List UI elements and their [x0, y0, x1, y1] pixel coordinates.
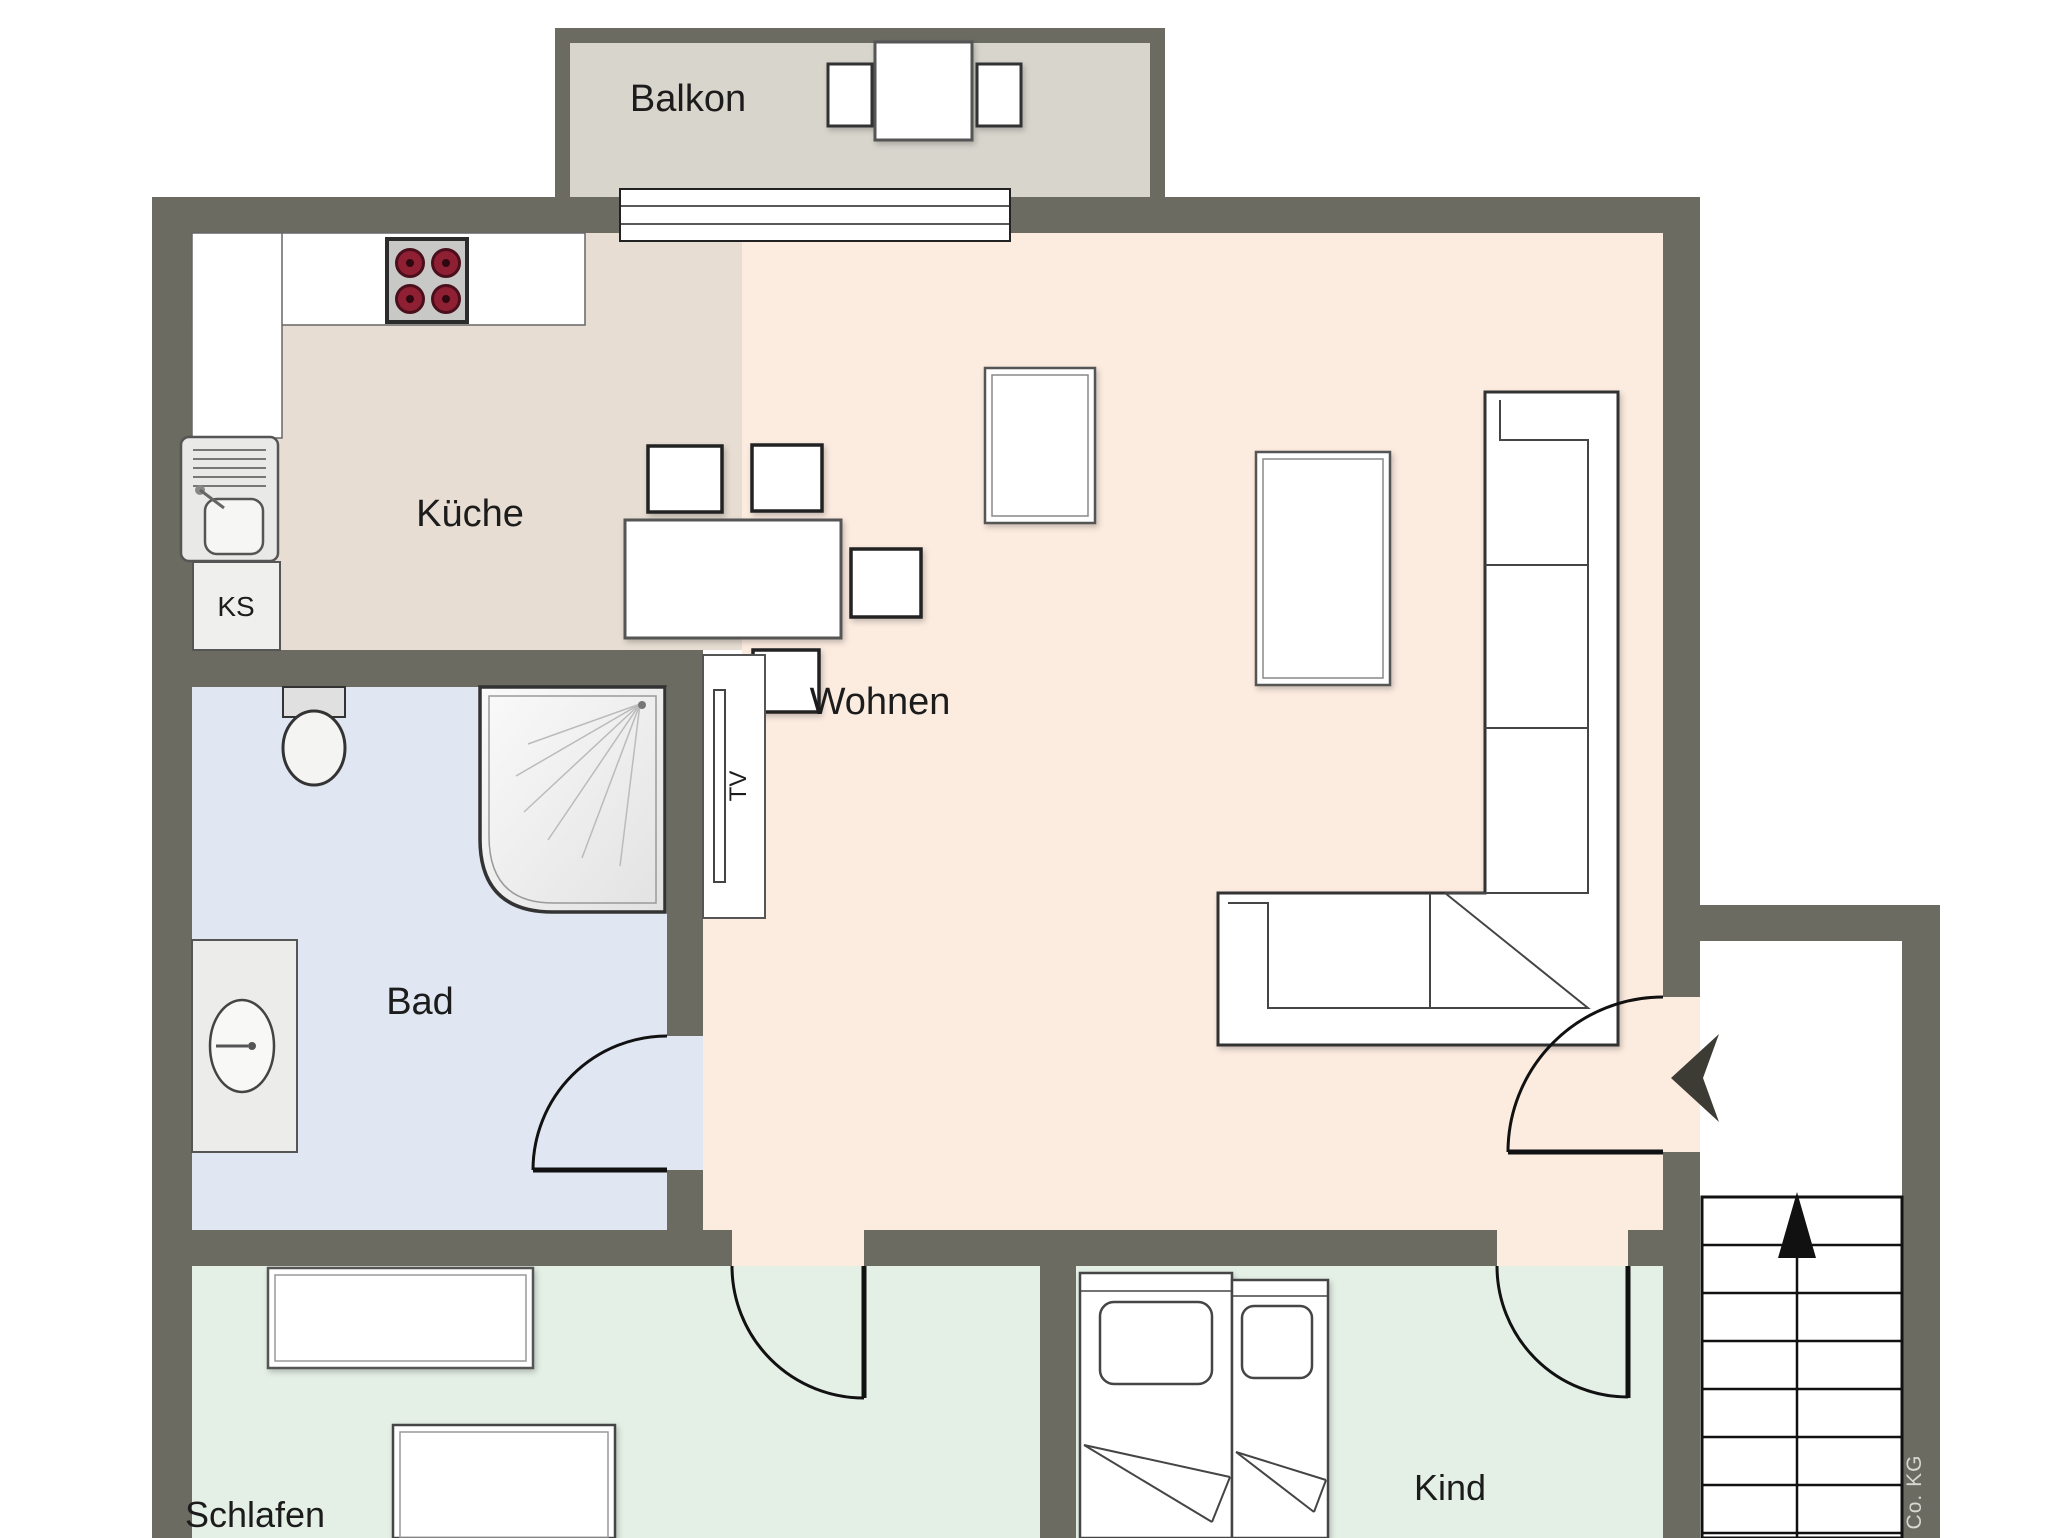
dining-table — [625, 520, 841, 638]
fridge-box: KS — [193, 562, 280, 650]
tv-unit: TV — [703, 655, 765, 918]
balcony-wall-right — [1150, 28, 1165, 197]
bath-wall-right-upper — [667, 687, 703, 1036]
kitchen-counter-left — [192, 233, 282, 438]
washbasin-icon — [192, 940, 297, 1152]
bath-doorway-floor — [667, 1036, 703, 1170]
bottom-wall-middle — [864, 1230, 1497, 1266]
balcony-window — [620, 189, 1010, 241]
toilet-icon — [283, 687, 345, 785]
room-label-wohnen: Wohnen — [810, 681, 951, 723]
staircase-icon — [1702, 1192, 1902, 1538]
bedroom-doorway-floor — [732, 1230, 864, 1266]
room-label-kueche: Küche — [416, 493, 524, 535]
stove-icon — [387, 239, 467, 322]
wardrobe — [268, 1268, 533, 1368]
tv-screen-icon — [714, 690, 725, 882]
coffee-table — [1256, 452, 1390, 685]
watermark-text: Co. KG — [1903, 1455, 1926, 1530]
armchair — [985, 368, 1095, 523]
pillow-icon — [1100, 1302, 1212, 1384]
child-doorway-floor — [1497, 1230, 1628, 1266]
bath-wall-top — [152, 650, 703, 687]
balcony-table — [875, 42, 972, 140]
dining-chair-right — [851, 549, 921, 617]
room-label-kind: Kind — [1414, 1467, 1486, 1508]
balcony-wall-left — [555, 28, 570, 197]
outer-wall-right-lower — [1663, 1152, 1700, 1538]
kitchen-sink-icon — [181, 437, 278, 561]
tv-label: TV — [725, 771, 752, 802]
outer-wall-right-upper — [1663, 233, 1700, 997]
balcony-wall-top — [555, 28, 1165, 43]
bedroom-child-divider-wall — [1040, 1266, 1076, 1538]
fridge-label: KS — [217, 591, 254, 622]
bottom-wall-left — [152, 1230, 732, 1266]
dining-chair-top-left — [648, 446, 722, 512]
child-room-furniture — [1080, 1273, 1328, 1538]
child-bed-small — [1232, 1280, 1328, 1538]
bottom-wall-right-stub — [1628, 1230, 1700, 1266]
stairwell-wall-right — [1902, 941, 1940, 1538]
bath-wall-right-lower — [667, 1170, 703, 1230]
stairwell-wall-top — [1700, 905, 1940, 941]
shower-icon — [480, 687, 665, 912]
outer-wall-left — [152, 197, 192, 1538]
balcony-chair-left — [828, 64, 872, 126]
floorplan-drawing: KS TV — [0, 0, 2048, 1538]
room-label-schlafen: Schlafen — [185, 1494, 325, 1535]
pillow-icon — [1242, 1306, 1312, 1378]
floorplan-page: KS TV — [0, 0, 2048, 1538]
room-label-bad: Bad — [386, 981, 454, 1023]
bedroom-bed — [393, 1425, 615, 1538]
balcony-chair-right — [977, 64, 1021, 126]
room-label-balkon: Balkon — [630, 78, 746, 120]
child-bed-large — [1080, 1273, 1232, 1538]
dining-chair-top-right — [752, 445, 822, 511]
